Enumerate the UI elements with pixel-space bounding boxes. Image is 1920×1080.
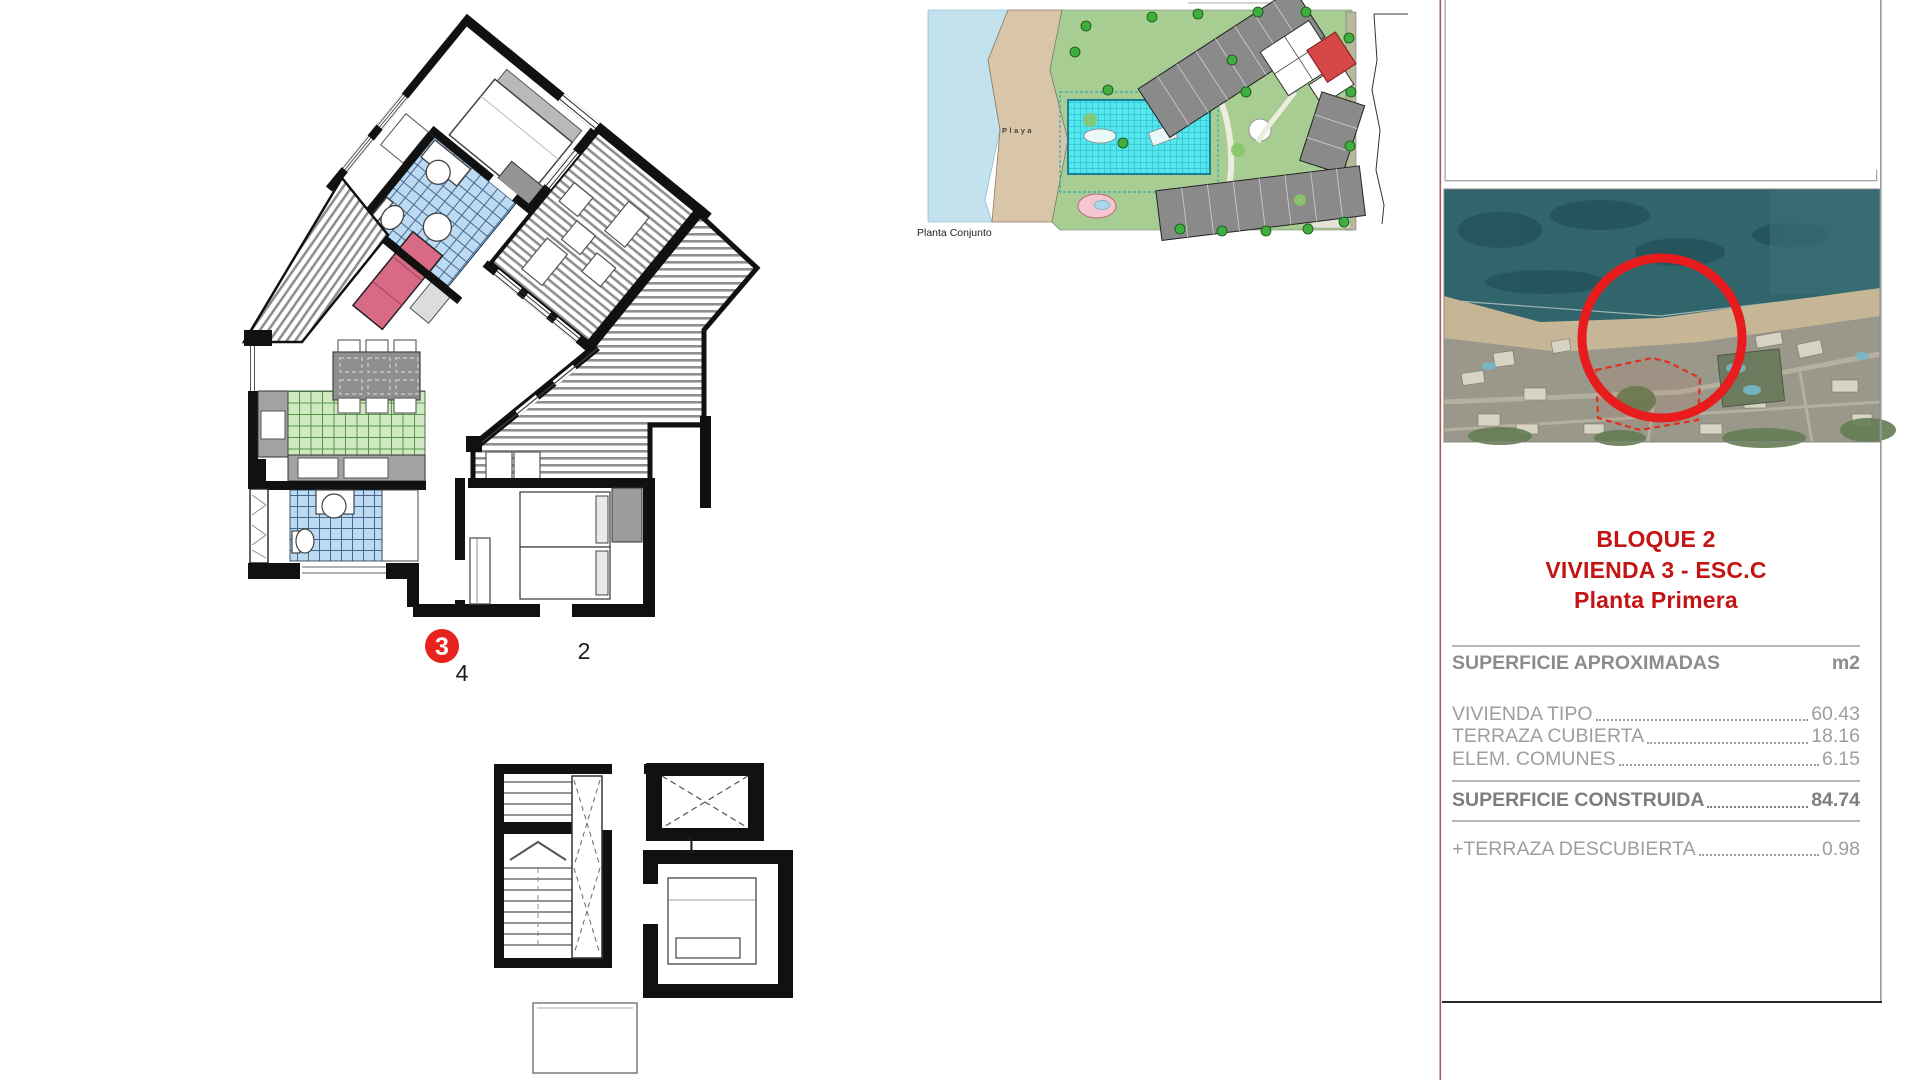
wall-corner xyxy=(466,436,482,452)
label-unit-2: 2 xyxy=(578,638,591,664)
row-label: ELEM. COMUNES xyxy=(1452,748,1616,771)
red-divider-line xyxy=(1440,0,1442,1080)
desk xyxy=(470,538,490,604)
surface-rows: VIVIENDA TIPO 60.43 TERRAZA CUBIERTA 18.… xyxy=(1452,703,1860,771)
stair-shaft xyxy=(572,776,602,958)
unit-badge-number: 3 xyxy=(435,633,449,661)
dining-table xyxy=(333,352,420,400)
info-panel: BLOQUE 2 VIVIENDA 3 - ESC.C Planta Prime… xyxy=(1452,524,1860,860)
label-unit-1: 1 xyxy=(685,832,698,858)
parcel-boundary xyxy=(1372,14,1408,224)
site-plan-caption: Planta Conjunto xyxy=(917,227,992,239)
extra-label: +TERRAZA DESCUBIERTA xyxy=(1452,838,1696,861)
surface-row: TERRAZA CUBIERTA 18.16 xyxy=(1452,725,1860,748)
storage-room xyxy=(643,850,793,998)
terrace-chair xyxy=(514,452,540,480)
dot-leader xyxy=(1699,854,1819,856)
wall-corner xyxy=(244,330,272,346)
bathroom2 xyxy=(248,459,426,607)
extra-value: 0.98 xyxy=(1822,838,1860,861)
surface-total-row: SUPERFICIE CONSTRUIDA 84.74 xyxy=(1452,780,1860,822)
surface-row: VIVIENDA TIPO 60.43 xyxy=(1452,703,1860,726)
elevator xyxy=(646,763,764,841)
surface-extra-row: +TERRAZA DESCUBIERTA 0.98 xyxy=(1452,838,1860,861)
dot-leader xyxy=(1619,764,1819,766)
terrace-chair xyxy=(486,452,512,480)
surface-header-unit: m2 xyxy=(1832,652,1860,675)
floor-plan: 3 4 2 1 xyxy=(244,14,793,1073)
stairwell xyxy=(494,764,652,968)
surface-header: SUPERFICIE APROXIMADAS m2 xyxy=(1452,647,1860,675)
row-value: 6.15 xyxy=(1822,748,1860,771)
row-label: VIVIENDA TIPO xyxy=(1452,703,1593,726)
surface-row: ELEM. COMUNES 6.15 xyxy=(1452,748,1860,771)
row-value: 60.43 xyxy=(1811,703,1860,726)
label-unit-4: 4 xyxy=(456,660,469,686)
dot-leader xyxy=(1707,806,1808,808)
dot-leader xyxy=(1596,719,1809,721)
row-value: 18.16 xyxy=(1811,725,1860,748)
unit-title: VIVIENDA 3 - ESC.C xyxy=(1452,555,1860,586)
total-label: SUPERFICIE CONSTRUIDA xyxy=(1452,789,1704,812)
patio xyxy=(533,1003,637,1073)
block-title: BLOQUE 2 xyxy=(1452,524,1860,555)
dining-set xyxy=(333,340,420,413)
dot-leader xyxy=(1647,742,1808,744)
site-plan: Planta Conjunto Playa xyxy=(917,0,1408,240)
floor-title: Planta Primera xyxy=(1452,585,1860,616)
wardrobe xyxy=(612,488,642,542)
total-value: 84.74 xyxy=(1811,789,1860,812)
beach-label: Playa xyxy=(1002,126,1034,135)
surface-table: SUPERFICIE APROXIMADAS m2 VIVIENDA TIPO … xyxy=(1452,645,1860,861)
plan-sheet: { "floor_plan": { "unit_badge": "3", "ba… xyxy=(0,0,1920,1080)
surface-header-label: SUPERFICIE APROXIMADAS xyxy=(1452,652,1720,675)
row-label: TERRAZA CUBIERTA xyxy=(1452,725,1644,748)
bedroom2 xyxy=(413,478,655,617)
location-photo xyxy=(1444,189,1896,448)
